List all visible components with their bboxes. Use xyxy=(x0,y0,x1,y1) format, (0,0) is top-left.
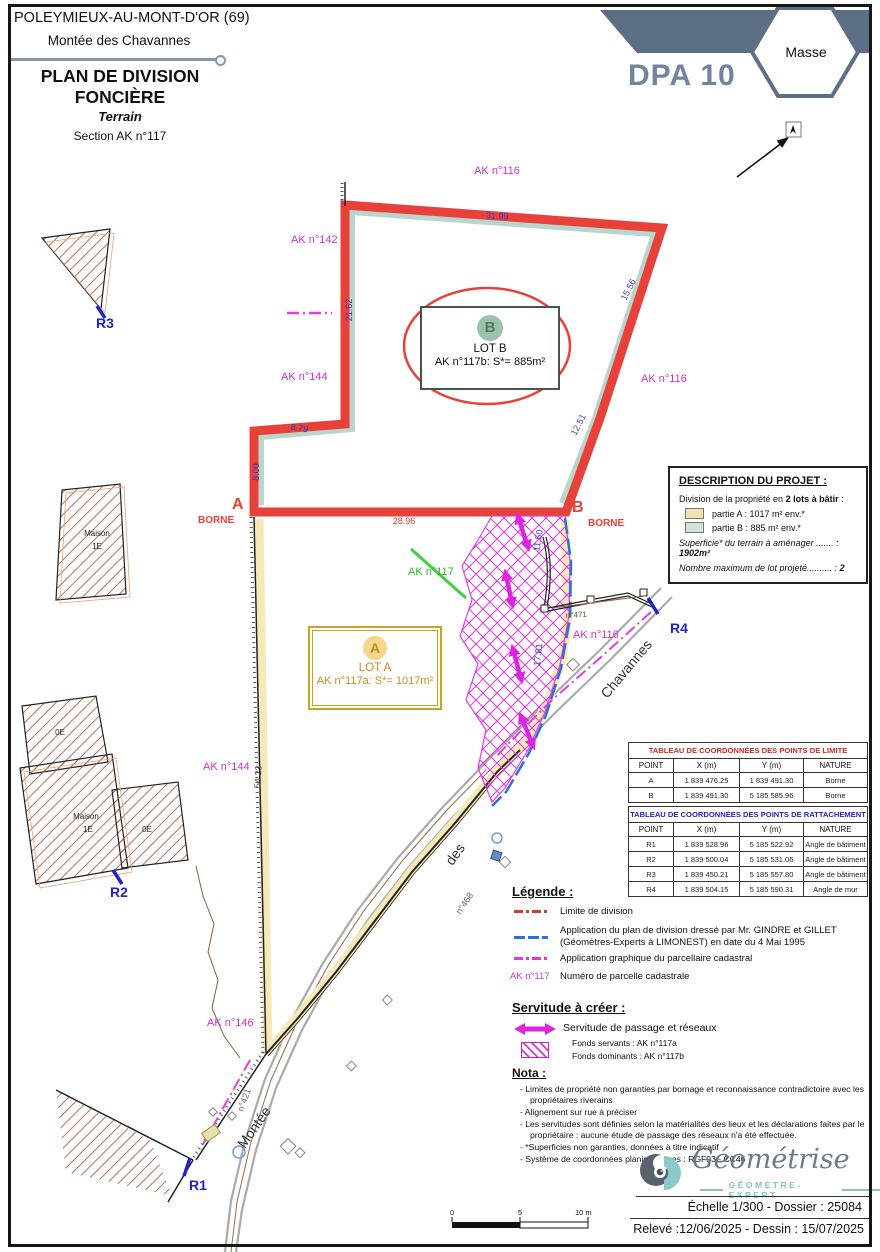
borne-b-label: BORNE xyxy=(588,518,624,529)
building-hatch-bottom xyxy=(56,1090,193,1202)
plan-drawing: Masse DPA 10 0 5 10 m AK n°116 AK n°142 … xyxy=(0,0,880,1252)
lot-a-name: LOT A xyxy=(313,662,437,674)
point-r1: R1 xyxy=(189,1177,207,1193)
header-rule xyxy=(11,58,217,61)
header-rule-dot xyxy=(215,55,226,66)
superficie-line: Superficie* du terrain à aménager ......… xyxy=(679,538,857,558)
geometrise-logo-icon xyxy=(636,1146,684,1194)
street-chavannes: Chavannes xyxy=(597,637,655,702)
description-intro: Division de la propriété en 2 lots à bât… xyxy=(679,494,857,504)
intro-prefix: Division de la propriété en xyxy=(679,494,786,504)
brand-rule-left xyxy=(700,1189,723,1191)
superficie-label: Superficie* du terrain à aménager ......… xyxy=(679,538,839,548)
parcel-ak142: AK n°142 xyxy=(291,234,338,246)
intro-suffix: : xyxy=(839,494,844,504)
cartouche-rule-1 xyxy=(636,1196,869,1197)
partie-a-row: partie A : 1017 m² env.* xyxy=(685,508,857,519)
servitude-hatch-swatch xyxy=(521,1042,549,1058)
svg-text:Maison: Maison xyxy=(73,812,99,821)
servitude-label: Servitude de passage et réseaux xyxy=(563,1022,717,1034)
legend-item-cadastral: Application graphique du parcellaire cad… xyxy=(560,953,752,964)
scale-0: 0 xyxy=(450,1208,454,1217)
servitude-title: Servitude à créer : xyxy=(512,1000,625,1015)
table-row: R31 839 450.215 185 557.80Angle de bâtim… xyxy=(629,867,868,882)
nota-title: Nota : xyxy=(512,1066,546,1080)
legend-item-plan1995-l2: (Géomètres-Experts à LIMONEST) en date d… xyxy=(560,937,805,948)
parcel-ak116-right: AK n°116 xyxy=(641,373,687,385)
point-r2: R2 xyxy=(110,884,128,900)
parcel-ak116-mid: AK n°116 xyxy=(573,629,619,641)
partie-b-row: partie B : 885 m² env.* xyxy=(685,522,857,533)
col-point: POINT xyxy=(629,823,674,837)
description-box: DESCRIPTION DU PROJET : Division de la p… xyxy=(668,466,868,584)
legend-title: Légende : xyxy=(512,884,573,899)
geometrise-brand: Géométrise xyxy=(692,1144,850,1175)
intro-bold: 2 lots à bâtir xyxy=(786,494,839,504)
parcel-ak117-green: AK n°117 xyxy=(408,566,454,578)
brand-rule-right xyxy=(842,1189,880,1191)
table-row: R11 839 528.965 185 522.92Angle de bâtim… xyxy=(629,837,868,852)
col-nature: NATURE xyxy=(804,759,868,773)
col-y: Y (m) xyxy=(740,823,804,837)
table-row: A1 839 476.251 839 491.30Borne xyxy=(629,773,868,788)
col-x: X (m) xyxy=(674,759,740,773)
legend-swatch-cadastral xyxy=(514,957,548,960)
point-a: A xyxy=(232,496,244,513)
nombre-line: Nombre maximum de lot projeté.......... … xyxy=(679,563,857,573)
page-title-line2: FONCIÈRE xyxy=(10,87,230,108)
ref-n471: n°471 xyxy=(566,610,588,620)
lot-b-label-box: B LOT B AK n°117b: S*= 885m² xyxy=(420,306,560,390)
scale-10: 10 m xyxy=(575,1208,592,1217)
cartouche-echelle: Échelle 1/300 - Dossier : 25084 xyxy=(636,1200,862,1214)
legend-swatch-limite xyxy=(514,910,548,913)
dimension-labels: 31.99 15.56 12.51 21.62 8.79 8.00 11.50 … xyxy=(251,210,638,666)
brand-sub-text: GÉOMÈTRE-EXPERT xyxy=(729,1180,836,1200)
col-point: POINT xyxy=(629,759,674,773)
svg-text:Maison: Maison xyxy=(84,529,110,538)
terrain-contour-line xyxy=(196,866,240,1058)
scale-5: 5 xyxy=(518,1208,522,1217)
partie-b-label: partie B : 885 m² env.* xyxy=(712,523,801,533)
lot-b-name: LOT B xyxy=(422,343,558,355)
point-r4: R4 xyxy=(670,620,688,636)
lot-a-area: AK n°117a: S*= 1017m² xyxy=(313,675,437,687)
legend-item-limite: Limite de division xyxy=(560,906,633,917)
legend-swatch-plan1995 xyxy=(514,936,548,939)
superficie-value: 1902m² xyxy=(679,548,710,558)
dim-54-23: 54.23 xyxy=(252,765,263,788)
lot-a-circle: A xyxy=(363,636,387,660)
plan-page: Masse DPA 10 0 5 10 m AK n°116 AK n°142 … xyxy=(0,0,880,1252)
nombre-label: Nombre maximum de lot projeté.......... … xyxy=(679,563,840,573)
cartouche-releve: Relevé :12/06/2025 - Dessin : 15/07/2025 xyxy=(630,1222,864,1236)
description-title: DESCRIPTION DU PROJET : xyxy=(679,475,857,487)
lot-a-label-box: A LOT A AK n°117a: S*= 1017m² xyxy=(312,630,438,706)
svg-text:0E: 0E xyxy=(55,728,65,737)
svg-text:8.00: 8.00 xyxy=(251,463,261,481)
page-subtitle: Terrain xyxy=(10,109,230,124)
table-rattachement-title: TABLEAU DE COORDONNÉES DES POINTS DE RAT… xyxy=(629,807,868,823)
partie-a-swatch xyxy=(685,508,704,519)
point-b: B xyxy=(572,499,584,516)
table-row: R41 839 504.155 185 590.31Angle de mur xyxy=(629,882,868,897)
lot-b-circle: B xyxy=(477,315,503,341)
lot-a-west-boundary xyxy=(193,517,266,1160)
rattachement-labels: R3 R2 R1 R4 xyxy=(96,315,688,1193)
ref-n468: n°468 xyxy=(454,891,476,916)
street-subtitle: Montée des Chavannes xyxy=(14,33,224,48)
building-r3 xyxy=(42,229,114,313)
servitude-fonds-servants: Fonds servants : AK n°117a xyxy=(572,1038,677,1048)
svg-text:12.51: 12.51 xyxy=(569,412,588,437)
nota-item: Limites de propriété non garanties par b… xyxy=(516,1084,868,1106)
legend-item-parcel-number: Numéro de parcelle cadastrale xyxy=(560,971,689,982)
nota-item: Alignement sur rue à préciser xyxy=(516,1107,868,1118)
nota-item: Les servitudes sont définies selon la ma… xyxy=(516,1119,868,1141)
point-r3: R3 xyxy=(96,315,114,331)
north-arrow xyxy=(737,122,801,177)
table-limite-title: TABLEAU DE COORDONNÉES DES POINTS DE LIM… xyxy=(629,743,868,759)
street-name-labels: Chavannes des Montée xyxy=(234,637,655,1151)
legend-swatch-parcel-number: AK n°117 xyxy=(510,971,550,982)
legend-item-plan1995-l1: Application du plan de division dressé p… xyxy=(560,925,837,936)
nombre-value: 2 xyxy=(840,563,845,573)
table-row: R21 839 500.045 185 531.06Angle de bâtim… xyxy=(629,852,868,867)
doc-ref-label: DPA 10 xyxy=(628,59,736,92)
parcel-ak144-lower: AK n°144 xyxy=(203,761,250,773)
ref-n421: n°421 xyxy=(235,1087,252,1113)
col-nature: NATURE xyxy=(804,823,868,837)
col-y: Y (m) xyxy=(740,759,804,773)
table-points-limite: TABLEAU DE COORDONNÉES DES POINTS DE LIM… xyxy=(628,742,868,803)
svg-text:0E: 0E xyxy=(142,825,152,834)
section-label: Section AK n°117 xyxy=(10,129,230,143)
lot-b-area: AK n°117b: S*= 885m² xyxy=(422,356,558,368)
svg-text:31.99: 31.99 xyxy=(486,210,509,222)
col-x: X (m) xyxy=(674,823,740,837)
lot-a-road-wall xyxy=(266,750,522,1056)
table-points-rattachement: TABLEAU DE COORDONNÉES DES POINTS DE RAT… xyxy=(628,806,868,897)
borne-a-label: BORNE xyxy=(198,515,234,526)
geometrise-brand-sub: GÉOMÈTRE-EXPERT xyxy=(700,1180,880,1200)
dim-28-96: 28.96 xyxy=(393,516,416,526)
scale-bar: 0 5 10 m xyxy=(450,1208,592,1228)
cartouche-rule-2 xyxy=(630,1218,869,1219)
svg-text:1E: 1E xyxy=(83,825,93,834)
parcel-ak144-upper: AK n°144 xyxy=(281,371,328,383)
table-row: B1 839 491.305 185 585.96Borne xyxy=(629,788,868,803)
servitude-fonds-dominants: Fonds dominants : AK n°117b xyxy=(572,1051,684,1061)
partie-b-swatch xyxy=(685,522,704,533)
parcel-ak146: AK n°146 xyxy=(207,1017,254,1029)
page-title-line1: PLAN DE DIVISION xyxy=(10,66,230,87)
masse-label: Masse xyxy=(785,44,826,60)
partie-a-label: partie A : 1017 m² env.* xyxy=(712,509,805,519)
street-des: des xyxy=(442,840,468,868)
svg-text:21.62: 21.62 xyxy=(344,299,354,322)
commune-title: POLEYMIEUX-AU-MONT-D'OR (69) xyxy=(14,10,250,26)
parcel-ak116-top: AK n°116 xyxy=(474,165,520,177)
building-group-lower xyxy=(20,696,188,888)
svg-text:1E: 1E xyxy=(92,542,102,551)
servitude-arrow-icon xyxy=(514,1020,556,1038)
